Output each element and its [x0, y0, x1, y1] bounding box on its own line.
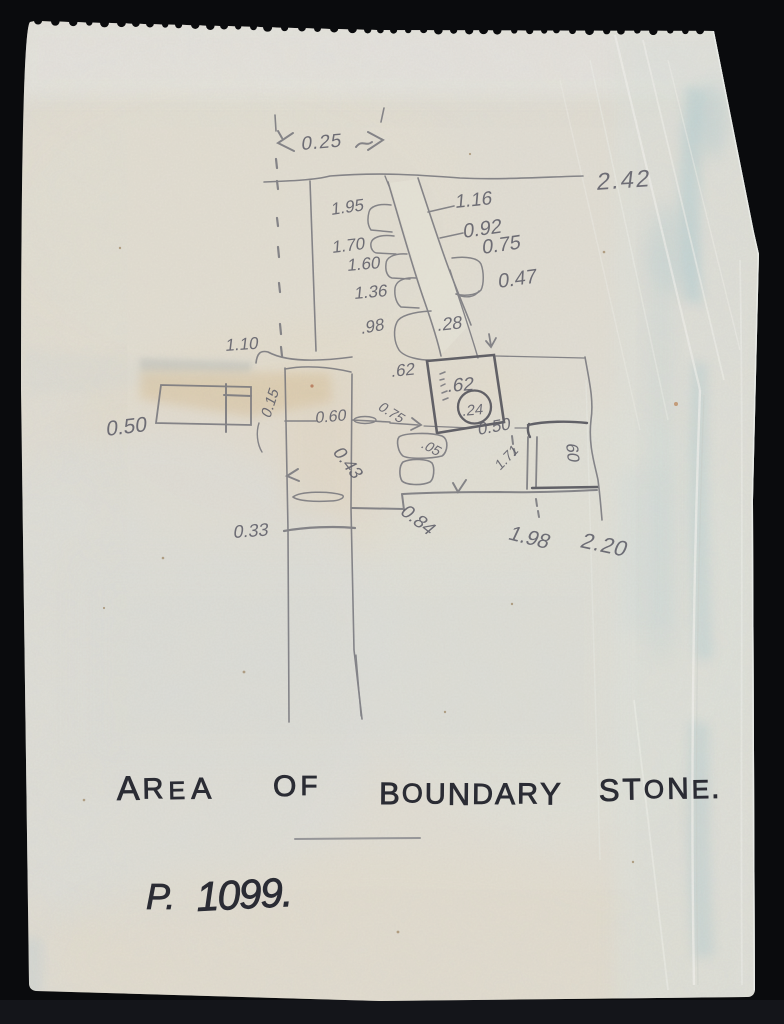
svg-text:60: 60: [562, 443, 584, 464]
svg-text:1.36: 1.36: [354, 280, 389, 303]
svg-text:.98: .98: [361, 314, 385, 338]
svg-text:P.: P.: [146, 876, 175, 917]
svg-text:STONE.: STONE.: [599, 771, 720, 808]
svg-text:0.25: 0.25: [300, 130, 343, 155]
svg-text:1.60: 1.60: [347, 252, 382, 275]
svg-text:BOUNDARY: BOUNDARY: [379, 775, 561, 813]
svg-text:0.33: 0.33: [233, 520, 270, 542]
svg-text:2.42: 2.42: [595, 165, 653, 196]
svg-text:1099.: 1099.: [195, 869, 292, 920]
svg-text:1.10: 1.10: [225, 333, 260, 355]
svg-text:.28: .28: [437, 312, 464, 335]
svg-text:.24: .24: [462, 401, 485, 420]
svg-text:.62: .62: [391, 358, 416, 381]
svg-text:OF: OF: [273, 770, 317, 803]
svg-text:0.60: 0.60: [315, 406, 348, 427]
svg-text:.62: .62: [446, 374, 475, 397]
svg-text:1.16: 1.16: [455, 188, 494, 213]
